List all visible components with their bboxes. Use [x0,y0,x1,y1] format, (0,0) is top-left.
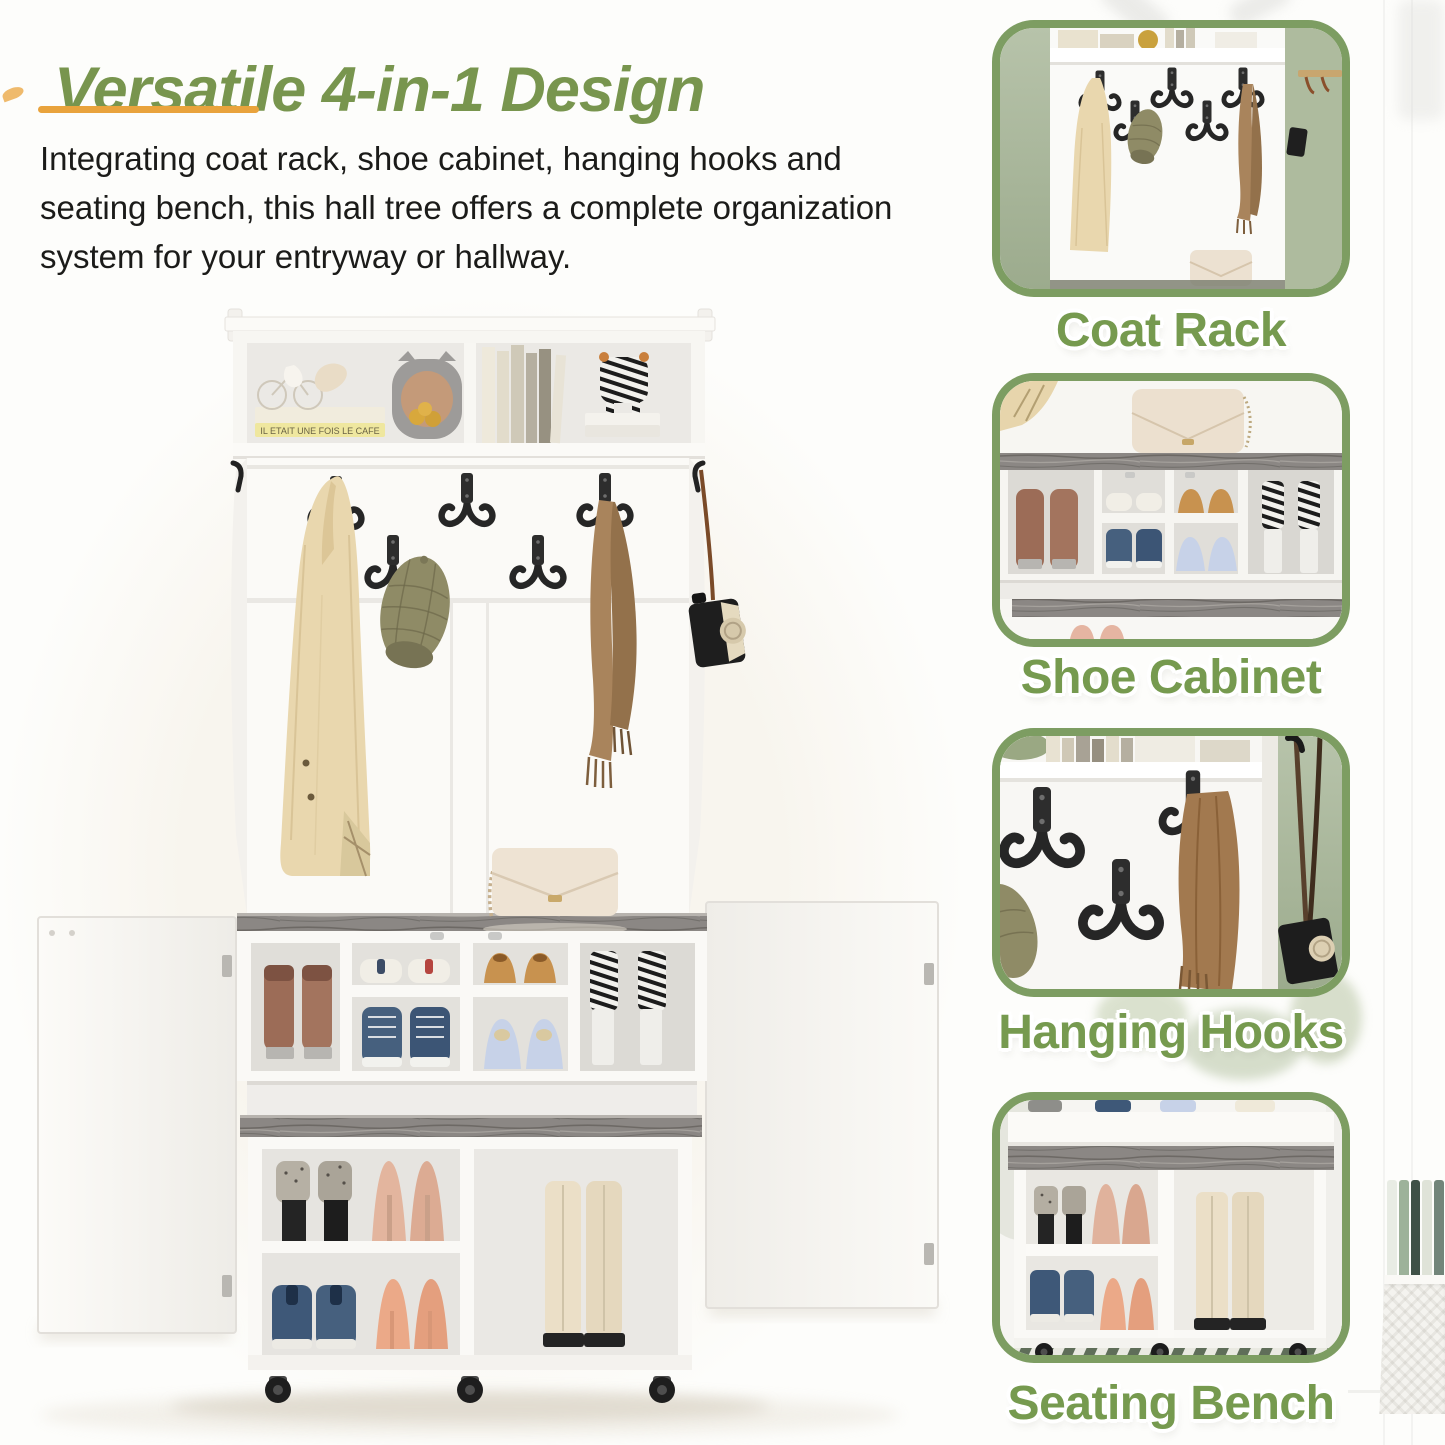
feature-thumb-seating-bench [992,1092,1350,1363]
magazine-basket [1378,1180,1445,1405]
top-shelf-hutch: IL ETAIT UNE FOIS LE CAFE [225,309,715,459]
feature-seating-bench [992,1092,1350,1363]
description-line: system for your entryway or hallway. [40,232,892,281]
product-description: Integrating coat rack, shoe cabinet, han… [40,134,892,281]
svg-text:IL ETAIT UNE FOIS LE CAFE: IL ETAIT UNE FOIS LE CAFE [260,426,379,436]
seating-bench-top [240,1117,702,1137]
feature-hanging-hooks [992,728,1350,997]
feature-caption-hanging-hooks: Hanging Hooks [992,1005,1350,1060]
title-underline [38,106,259,113]
magazines [1386,1180,1445,1280]
seating-bench-illustration [1000,1100,1342,1355]
hall-tree-illustration: IL ETAIT UNE FOIS LE CAFE [0,295,965,1445]
feature-caption-seating-bench: Seating Bench [992,1376,1350,1431]
open-shelf-gap [247,1081,697,1117]
bench-top [237,915,707,931]
decor-book-stack: IL ETAIT UNE FOIS LE CAFE [255,407,385,437]
background-blur [1398,0,1444,120]
hanging-hooks-illustration [1000,736,1342,989]
feature-caption-coat-rack: Coat Rack [992,303,1350,358]
feature-thumb-hanging-hooks [992,728,1350,997]
main-product-image: IL ETAIT UNE FOIS LE CAFE [0,295,965,1445]
description-line: Integrating coat rack, shoe cabinet, han… [40,134,892,183]
shoe-cabinet-illustration [1000,381,1342,639]
rolling-shoe-bench [248,1137,692,1370]
feature-thumb-shoe-cabinet [992,373,1350,647]
description-line: seating bench, this hall tree offers a c… [40,183,892,232]
product-infographic: Versatile 4-in-1 Design Integrating coat… [0,0,1445,1445]
feature-thumb-coat-rack [992,20,1350,297]
right-door-open [706,902,938,1315]
coat-rack-illustration [1000,28,1342,289]
left-door-open [38,917,236,1339]
leaf-accent [1,85,25,103]
feature-shoe-cabinet [992,373,1350,647]
feature-coat-rack [992,20,1350,297]
basket-body [1378,1275,1445,1414]
page-title: Versatile 4-in-1 Design [54,54,704,126]
middle-shoe-cabinet [237,931,707,1081]
feature-caption-shoe-cabinet: Shoe Cabinet [992,650,1350,705]
